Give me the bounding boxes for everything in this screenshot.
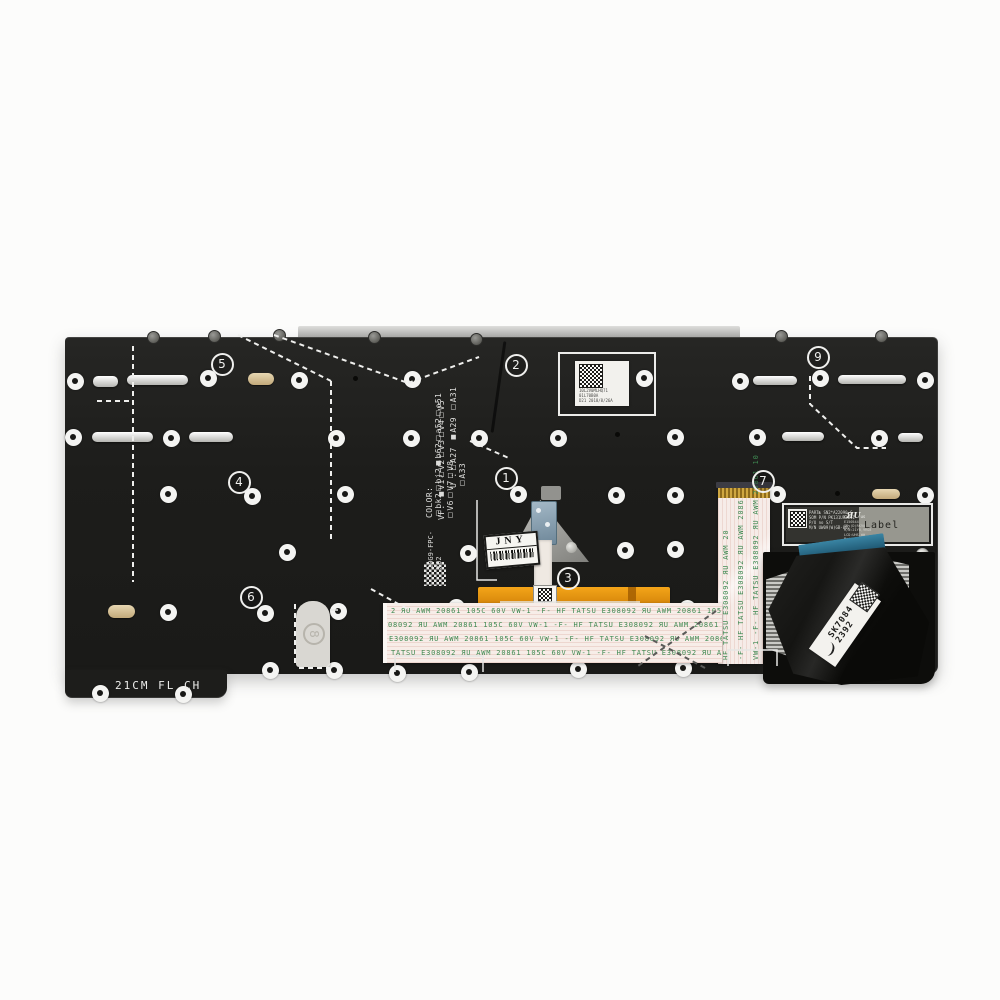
pen-mark xyxy=(821,640,836,657)
grommet-layer xyxy=(0,0,1000,1000)
keyboard-backplate-photo: 21CM FL CH U :□A27 ■A29 □A31 □A33 VF: ■V… xyxy=(0,0,1000,1000)
